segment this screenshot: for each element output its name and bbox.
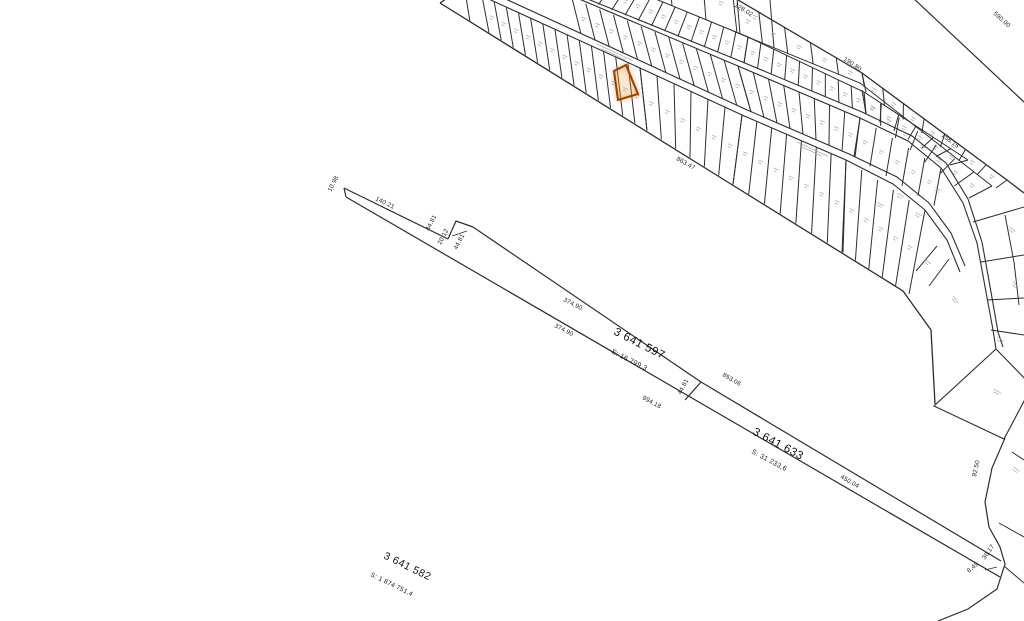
lot-boundary-line [785, 55, 787, 80]
parcel-number-microtext [737, 46, 743, 50]
map-line [486, 0, 965, 266]
lot-boundary-line [531, 18, 538, 63]
parcel-number-microtext [665, 54, 671, 58]
lot-boundary-line [651, 2, 663, 26]
parcel-number-microtext [891, 102, 897, 107]
parcel-number-microtext [718, 1, 724, 5]
parcel-number-microtext [842, 92, 848, 96]
map-line [981, 255, 1024, 262]
lot-boundary-line [612, 0, 627, 10]
lot-boundary-line [669, 38, 680, 80]
parcel-number-microtext [803, 184, 809, 188]
lot-boundary-line [758, 43, 761, 69]
lot-boundary-line [870, 128, 876, 166]
lot-boundary-line [691, 17, 699, 42]
parcel-number-microtext [758, 160, 764, 164]
lot-boundary-line [854, 118, 860, 157]
lot-boundary-line [665, 7, 675, 31]
lot-boundary-line [702, 0, 706, 20]
lot-boundary-line [855, 170, 861, 260]
parcel-number-microtext [623, 35, 629, 39]
lot-boundary-line [738, 66, 751, 112]
lot-boundary-line [886, 138, 892, 176]
parcel-number-microtext [562, 55, 568, 59]
dimension-label: 994.18 [641, 395, 663, 411]
parcel-number-microtext [735, 84, 741, 88]
map-line [733, 31, 992, 186]
parcel-number-microtext [595, 44, 632, 63]
dimension-label: 36.17 [981, 543, 997, 561]
map-line [912, 0, 1024, 102]
lot-boundary-line [719, 107, 725, 175]
lot-boundary-line [780, 134, 786, 213]
parcel-number-microtext [1012, 467, 1019, 473]
lot-boundary-line [749, 121, 757, 194]
map-line [466, 0, 470, 22]
lot-boundary-line [579, 40, 586, 93]
dimension-label: 863.47 [675, 156, 697, 172]
map-line [1004, 566, 1024, 583]
lot-boundary-line [977, 165, 986, 175]
parcel-number-microtext [876, 202, 883, 207]
lot-boundary-line [683, 43, 695, 86]
lot-boundary-line [883, 88, 885, 105]
lot-boundary-line [836, 58, 838, 75]
map-line [991, 330, 1024, 335]
lot-boundary-line [718, 27, 724, 52]
dimension-label: 44.81 [677, 378, 691, 396]
lot-boundary-line [784, 86, 790, 129]
parcel-number-microtext [847, 70, 853, 75]
parcel-number-microtext [819, 120, 825, 124]
lot-boundary-line [697, 49, 709, 93]
parcel-number-microtext [549, 48, 555, 52]
lot-boundary-line [482, 0, 489, 33]
map-viewport: 590.00128.02190.80158.15863.4710.98140.2… [0, 0, 1024, 621]
dimension-label: 128.02 [733, 2, 754, 19]
lot-boundary-line [764, 128, 771, 204]
lot-boundary-line [851, 86, 852, 108]
lot-boundary-line [704, 22, 711, 47]
lot-boundary-line [799, 92, 803, 135]
lot-boundary-line [896, 200, 910, 286]
lot-boundary-line [796, 141, 802, 224]
lot-boundary-line [586, 4, 595, 41]
parcel-number-microtext [776, 63, 782, 67]
lot-boundary-line [678, 12, 687, 36]
parcel-number-microtext [489, 16, 495, 20]
parcel-number-microtext [673, 20, 679, 24]
parcel-number-microtext [788, 176, 794, 180]
lot-boundary-line [600, 9, 610, 47]
parcel-number-microtext [910, 170, 916, 175]
lot-boundary-line [814, 99, 816, 141]
parcel-number-microtext [686, 25, 692, 29]
parcel-number-microtext [855, 98, 861, 102]
parcel-number-microtext [833, 127, 839, 131]
dimension-label: 44.81 [425, 214, 439, 232]
parcel-number-microtext [917, 136, 923, 141]
lot-boundary-line [641, 26, 652, 66]
parcel-number-microtext [910, 116, 916, 121]
lot-boundary-line [674, 84, 676, 149]
parcel-number-microtext [992, 389, 1001, 396]
map-line [934, 349, 1024, 439]
parcel-number-microtext [664, 110, 670, 114]
parcel-number-microtext [711, 135, 717, 139]
lot-boundary-line [759, 12, 763, 43]
lot-boundary-line [591, 46, 598, 101]
parcel-number-microtext [711, 35, 717, 39]
parcel-number-microtext [680, 118, 686, 122]
dimension-label: 374.90 [562, 297, 584, 313]
parcel-number-microtext [586, 68, 592, 72]
parcel-number-microtext [707, 72, 713, 76]
lot-boundary-line [812, 68, 813, 92]
parcel-number-microtext [537, 42, 543, 46]
parcel-number-microtext [896, 193, 904, 199]
lot-boundary-line [812, 147, 817, 233]
parcel-number-microtext [927, 180, 933, 185]
map-line [346, 197, 1000, 577]
lot-boundary-line [902, 148, 909, 186]
parcel-number-microtext [695, 127, 701, 131]
parcel-number-microtext [834, 200, 840, 204]
parcel-number-microtext [699, 30, 705, 34]
parcel-number-microtext [923, 259, 931, 266]
lot-boundary-line [543, 24, 550, 71]
map-line [701, 382, 1001, 561]
lot-boundary-line [753, 73, 764, 118]
lot-boundary-line [567, 35, 574, 86]
parcel-number-microtext [878, 227, 884, 232]
lot-boundary-line [954, 172, 973, 186]
parcel-number-microtext [934, 187, 941, 193]
lot-boundary-line [829, 105, 830, 146]
parcel-number-microtext [914, 212, 921, 218]
lot-boundary-line [785, 27, 788, 53]
parcel-number-microtext [791, 108, 797, 112]
lot-boundary-line [733, 115, 742, 185]
lot-boundary-line [882, 190, 893, 277]
lot-boundary-line [625, 0, 639, 15]
dimension-label: 190.80 [842, 56, 863, 73]
lot-boundary-line [614, 15, 624, 54]
parcel-number-microtext [724, 40, 730, 44]
parcel-number-microtext [763, 96, 769, 100]
parcel-number-microtext [951, 296, 958, 304]
lot-boundary-line [918, 158, 925, 196]
parcel-number-microtext [501, 22, 507, 26]
lot-boundary-line [909, 210, 925, 294]
map-line [916, 246, 937, 271]
parcel-number-microtext [648, 102, 654, 106]
lot-boundary-line [518, 13, 525, 56]
parcel-number-microtext [894, 160, 900, 165]
parcel-number-microtext [862, 140, 868, 145]
parcel-number-microtext [969, 183, 975, 188]
parcel-number-microtext [819, 192, 825, 196]
lot-boundary-line [704, 99, 708, 166]
lot-boundary-line [638, 0, 651, 21]
parcel-number-microtext [513, 29, 519, 33]
parcel-number-microtext [637, 42, 643, 46]
parcel-number-microtext [848, 208, 854, 213]
parcel-number-microtext [727, 144, 733, 148]
dimension-label: 590.00 [992, 10, 1012, 29]
lot-boundary-line [494, 2, 501, 41]
parcel-number-microtext [598, 74, 604, 78]
dimension-label: 450.04 [839, 474, 860, 490]
lot-boundary-line [690, 92, 691, 158]
lot-boundary-line [724, 60, 737, 105]
parcel-number-microtext [721, 78, 727, 82]
lot-boundary-line [627, 21, 637, 60]
dimension-label: 92.50 [971, 459, 981, 477]
map-line [985, 567, 997, 570]
parcel-number-microtext [822, 58, 828, 63]
cadastral-map-canvas: 590.00128.02190.80158.15863.4710.98140.2… [0, 0, 1024, 621]
map-line [344, 188, 448, 239]
parcel-number-microtext [829, 86, 835, 90]
parcel-number-microtext [623, 0, 629, 3]
parcel-number-microtext [661, 15, 667, 19]
map-line [733, 0, 1024, 193]
parcel-number-microtext [777, 102, 783, 106]
parcel-number-microtext [750, 51, 756, 55]
parcel-number-microtext [581, 17, 587, 21]
lot-boundary-line [572, 0, 581, 34]
parcel-number-microtext [803, 75, 809, 79]
parcel-number-microtext [742, 152, 748, 156]
lot-boundary-line [655, 32, 666, 73]
highlighted-parcel[interactable] [614, 65, 638, 100]
map-line [1012, 452, 1024, 460]
parcel-number-microtext [863, 218, 869, 223]
parcel-number-microtext [989, 174, 995, 179]
dimension-label: 853.06 [721, 372, 742, 388]
parcel-number-microtext [749, 90, 755, 94]
lot-boundary-line [555, 29, 562, 77]
parcel-number-microtext [635, 4, 641, 8]
parcel-number-microtext [886, 119, 892, 124]
parcel-number-microtext [773, 168, 779, 172]
parcel-number-microtext [869, 106, 875, 111]
dimension-label: 374.90 [553, 323, 575, 339]
parcel-number-microtext [574, 61, 580, 65]
parcel-number-microtext [789, 69, 795, 73]
parcel-number-microtext [693, 66, 699, 70]
lot-boundary-line [842, 112, 845, 152]
lot-boundary-line [506, 7, 513, 48]
dimension-label: 10.98 [327, 175, 341, 193]
map-line [999, 523, 1024, 537]
lot-boundary-line [604, 51, 611, 107]
parcel-number-microtext [892, 236, 898, 241]
parcel-number-microtext [816, 80, 822, 84]
lot-boundary-line [798, 61, 799, 85]
parcel-number-microtext [901, 126, 907, 131]
parcel-number-microtext [870, 106, 876, 111]
map-line [440, 3, 935, 404]
dimension-label: 8.49 [966, 561, 981, 575]
lot-boundary-line [731, 32, 736, 58]
lot-boundary-line [744, 37, 748, 63]
lot-boundary-line [770, 0, 774, 48]
parcel-number-microtext [648, 9, 654, 13]
parcel-number-microtext [1008, 227, 1015, 233]
lot-boundary-line [842, 160, 846, 252]
lot-boundary-line [838, 80, 839, 103]
lot-boundary-line [940, 159, 955, 174]
lot-boundary-line [710, 55, 722, 99]
lot-boundary-line [640, 68, 647, 131]
parcel-area-label: S: 1 874 751,4 [369, 572, 414, 599]
lot-boundary-line [810, 43, 813, 65]
lot-boundary-line [869, 180, 878, 269]
parcel-number-microtext [679, 60, 685, 64]
parcel-number-microtext [752, 15, 758, 19]
parcel-number-microtext [609, 29, 615, 33]
map-line [440, 0, 452, 3]
map-line [473, 227, 701, 382]
lot-boundary-line [769, 79, 778, 123]
parcel-number-microtext [805, 114, 811, 118]
parcel-number-microtext [969, 160, 975, 165]
lot-boundary-line [827, 154, 831, 243]
parcel-number-microtext [651, 48, 657, 52]
parcel-number-microtext [763, 57, 769, 61]
parcel-number-microtext [595, 23, 601, 27]
parcel-number-microtext [878, 150, 884, 155]
map-line [973, 207, 1024, 222]
parcel-number-microtext [907, 245, 913, 250]
lot-boundary-line [657, 76, 661, 140]
lot-boundary-line [996, 180, 1007, 188]
lot-boundary-line [771, 49, 774, 74]
parcel-id-label: 3 641 582 [382, 550, 433, 583]
parcel-number-microtext [848, 133, 854, 137]
parcel-number-microtext [525, 35, 531, 39]
map-line [929, 259, 949, 286]
parcel-number-microtext [745, 19, 751, 24]
parcel-number-microtext [796, 45, 802, 50]
